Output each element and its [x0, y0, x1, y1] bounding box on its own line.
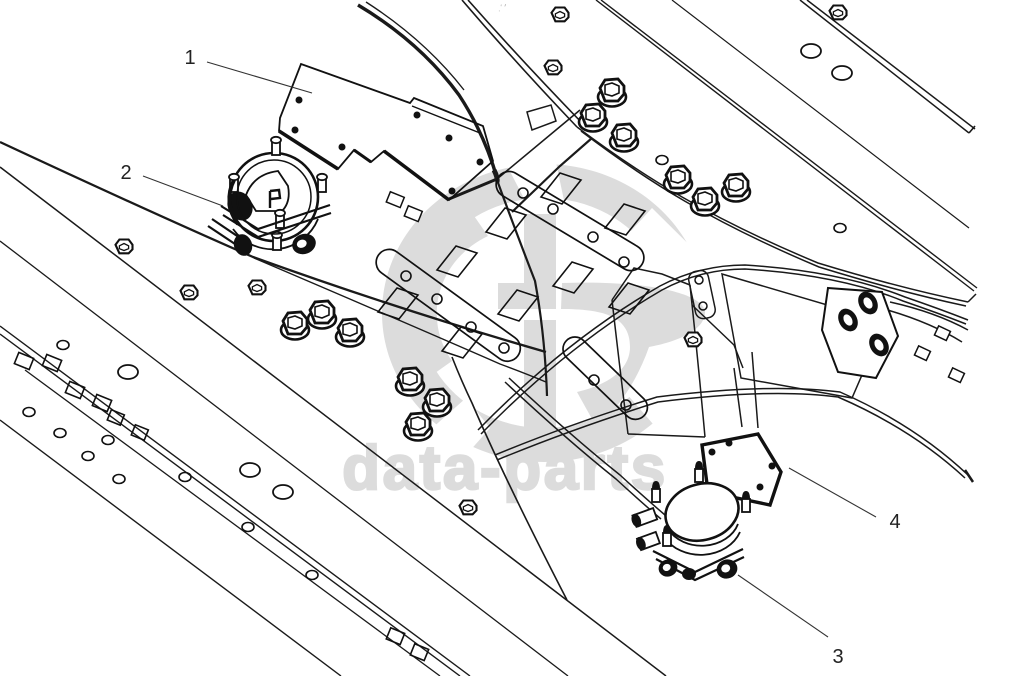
svg-text:1: 1	[184, 47, 195, 69]
svg-text:2: 2	[120, 162, 131, 184]
svg-text:data-parts: data-parts	[342, 434, 668, 503]
svg-text:3: 3	[832, 646, 843, 668]
svg-text:ˌʻ ׳: ˌʻ ׳	[498, 4, 507, 12]
svg-text:4: 4	[889, 511, 900, 533]
